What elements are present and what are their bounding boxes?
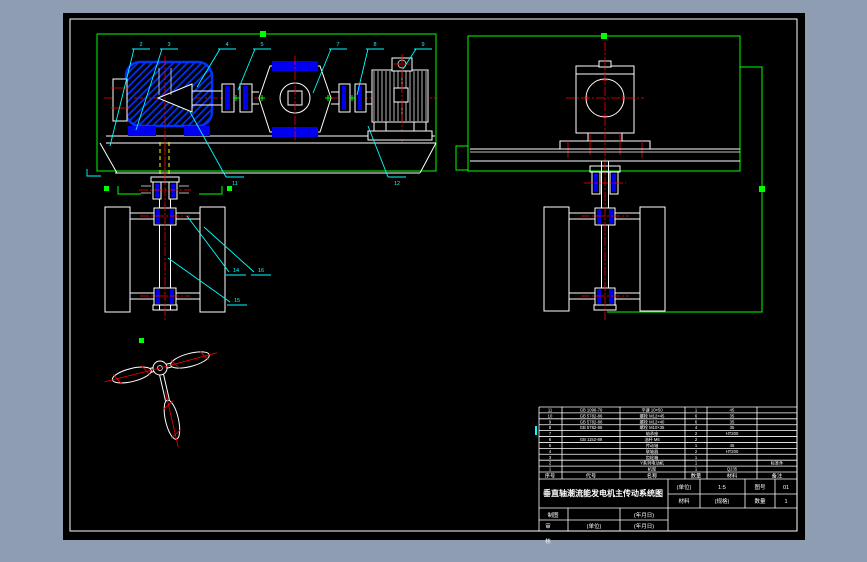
check-label: 审 [545,522,551,530]
leader-label: 4 [225,42,228,48]
bom-cell: GB 5782-86 [580,419,603,424]
grip-handle[interactable] [139,338,144,343]
check-org: (单位) [587,522,602,530]
leader-label: 2 [139,42,142,48]
leader-label: 11 [232,181,238,187]
left-float[interactable] [544,207,569,311]
leader-label: 3 [167,42,170,48]
draw-date: (年月日) [634,511,654,519]
scale-value: 1:5 [718,485,726,491]
leader-label: 15 [234,298,240,304]
qty-value: 1 [784,499,787,505]
spec-value: (规格) [715,497,730,505]
bom-header: 代号 [586,472,596,480]
left-float[interactable] [105,207,130,312]
bom-cell: 45 [730,443,735,448]
drawing-title: 垂直轴潮流能发电机主传动系统图 [543,488,663,498]
bom-cell: 11 [548,408,553,413]
check-label-below-border: 核 [545,537,551,545]
text-cursor-mark [535,426,537,435]
bom-header: 数量 [691,472,701,480]
reducer-gearbox[interactable] [259,56,331,142]
bom-cell: GB 1152-89 [580,437,603,442]
bom-cell: 35 [730,419,735,424]
section-mark [227,186,232,191]
material-label: 材料 [678,497,690,505]
leader-label: 5 [260,42,263,48]
grip-handle[interactable] [260,31,266,37]
bom-header: 备注 [772,472,782,480]
drawing-no-value: 01 [783,485,789,491]
leader-label: 8 [373,42,376,48]
bom-cell: HT200 [726,431,739,436]
bom-header: 名称 [647,472,657,480]
bom-cell: Q235 [727,467,738,472]
bom-cell: 机架 [648,466,656,473]
drawing-no-label: 图号 [754,483,766,491]
leader-label: 7 [336,42,339,48]
leader-label: 12 [394,181,400,187]
bom-cell: 10 [548,413,553,418]
leader-label: 9 [421,42,424,48]
qty-label: 数量 [754,497,766,505]
bom-cell: GB 1096-79 [580,408,603,413]
section-mark [104,186,109,191]
leader-label: 16 [258,268,264,274]
grip-handle[interactable] [601,33,607,39]
bom-cell: 标准件 [771,460,784,467]
bom-cell: 45 [730,408,735,413]
bom-cell: 35 [730,413,735,418]
bom-header: 序号 [545,472,555,480]
check-date: (年月日) [634,522,654,530]
bom-cell: 35 [730,425,735,430]
right-float[interactable] [640,207,665,311]
cad-application-window: 2 3 4 5 7 8 9 11 12 [0,0,867,562]
bom-cell: GB 5782-86 [580,413,603,418]
bom-header: 材料 [727,472,737,480]
bom-cell: HT200 [726,449,739,454]
leader-label: 14 [233,268,239,274]
unit-label: (单位) [677,483,692,491]
grip-handle[interactable] [759,186,765,192]
draw-label: 制图 [547,511,559,519]
bom-cell: GB 5782-86 [580,425,603,430]
